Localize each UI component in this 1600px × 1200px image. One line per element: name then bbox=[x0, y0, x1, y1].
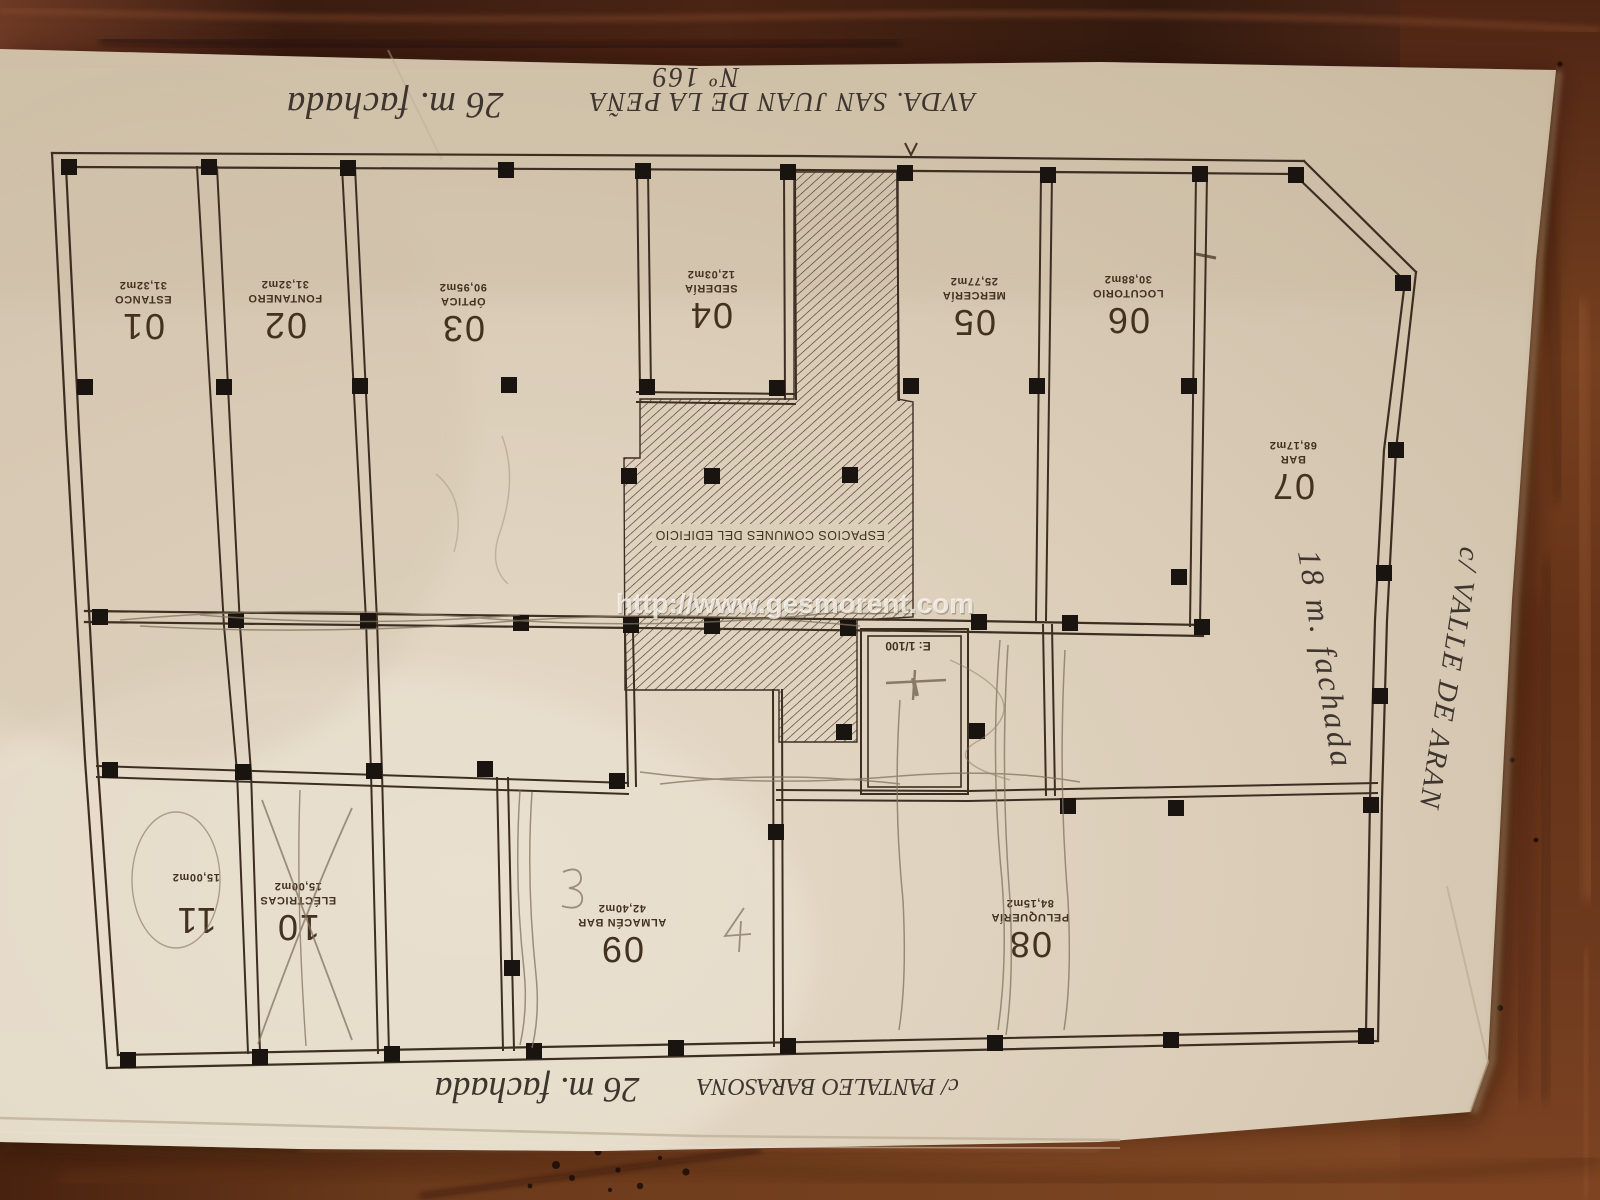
svg-text:LOCUTORIO: LOCUTORIO bbox=[1092, 287, 1163, 299]
svg-text:03: 03 bbox=[441, 308, 485, 349]
svg-text:ESTANCO: ESTANCO bbox=[114, 293, 171, 305]
svg-text:42,40m2: 42,40m2 bbox=[598, 902, 646, 914]
svg-text:15,00m2: 15,00m2 bbox=[172, 871, 220, 883]
svg-text:15,00m2: 15,00m2 bbox=[274, 880, 322, 892]
svg-text:ÓPTICA: ÓPTICA bbox=[440, 295, 485, 308]
svg-text:02: 02 bbox=[263, 305, 307, 346]
svg-text:31,32m2: 31,32m2 bbox=[119, 279, 167, 291]
svg-text:26 m. fachada: 26 m. fachada bbox=[435, 1070, 640, 1110]
svg-text:ESPACIOS COMUNES DEL EDIFICIO: ESPACIOS COMUNES DEL EDIFICIO bbox=[655, 528, 885, 542]
svg-text:06: 06 bbox=[1106, 300, 1150, 341]
svg-text:PELUQUERÍA: PELUQUERÍA bbox=[991, 911, 1069, 924]
svg-text:c/ PANTALEO BARASONA: c/ PANTALEO BARASONA bbox=[697, 1073, 959, 1099]
svg-text:http://www.gesmorent.com: http://www.gesmorent.com bbox=[616, 588, 974, 619]
svg-text:10: 10 bbox=[276, 907, 320, 948]
svg-text:08: 08 bbox=[1008, 924, 1052, 965]
svg-text:AVDA. SAN JUAN DE LA PEÑA: AVDA. SAN JUAN DE LA PEÑA bbox=[589, 87, 978, 117]
svg-text:90,95m2: 90,95m2 bbox=[439, 281, 487, 293]
svg-text:E: 1/100: E: 1/100 bbox=[885, 639, 931, 653]
svg-text:04: 04 bbox=[689, 295, 733, 336]
svg-text:SEDERÍA: SEDERÍA bbox=[684, 282, 737, 295]
svg-text:12,03m2: 12,03m2 bbox=[687, 268, 735, 280]
svg-text:07: 07 bbox=[1271, 466, 1315, 507]
svg-text:84,15m2: 84,15m2 bbox=[1006, 897, 1054, 909]
svg-text:05: 05 bbox=[952, 302, 996, 343]
svg-text:MERCERÍA: MERCERÍA bbox=[942, 289, 1005, 302]
svg-text:09: 09 bbox=[600, 929, 644, 970]
svg-text:31,32m2: 31,32m2 bbox=[261, 278, 309, 290]
svg-text:25,77m2: 25,77m2 bbox=[950, 275, 998, 287]
svg-text:FONTANERO: FONTANERO bbox=[248, 292, 322, 304]
svg-text:68,17m2: 68,17m2 bbox=[1269, 439, 1317, 451]
svg-text:11: 11 bbox=[175, 900, 216, 941]
svg-text:01: 01 bbox=[121, 306, 165, 347]
svg-text:30,88m2: 30,88m2 bbox=[1104, 273, 1152, 285]
svg-text:Nº 169: Nº 169 bbox=[651, 61, 740, 92]
svg-text:BAR: BAR bbox=[1280, 453, 1306, 465]
svg-text:ALMACÉN BAR: ALMACÉN BAR bbox=[578, 916, 666, 929]
svg-text:26 m. fachada: 26 m. fachada bbox=[286, 84, 503, 125]
